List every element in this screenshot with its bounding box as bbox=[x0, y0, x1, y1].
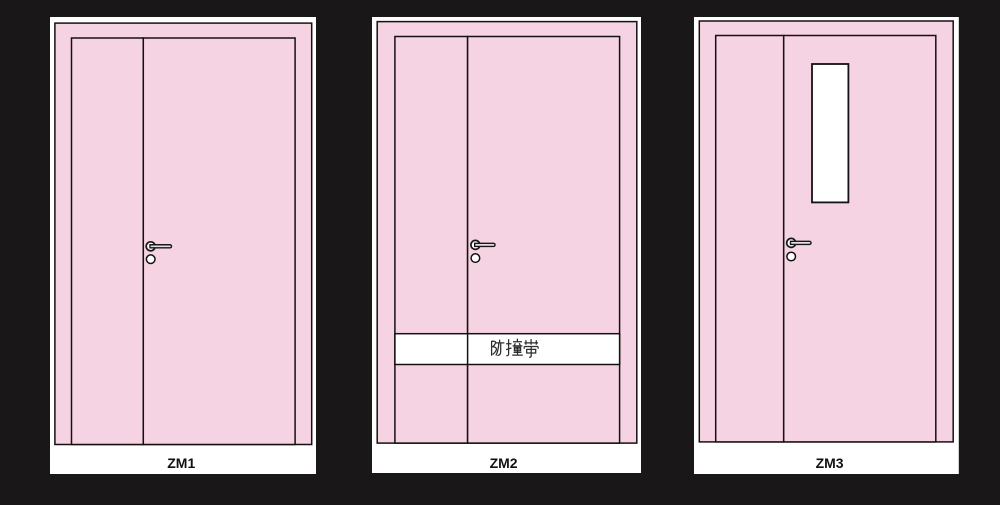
svg-text:ZM2: ZM2 bbox=[490, 454, 518, 470]
svg-text:ZM3: ZM3 bbox=[816, 454, 844, 470]
svg-text:ZM1: ZM1 bbox=[167, 454, 195, 470]
